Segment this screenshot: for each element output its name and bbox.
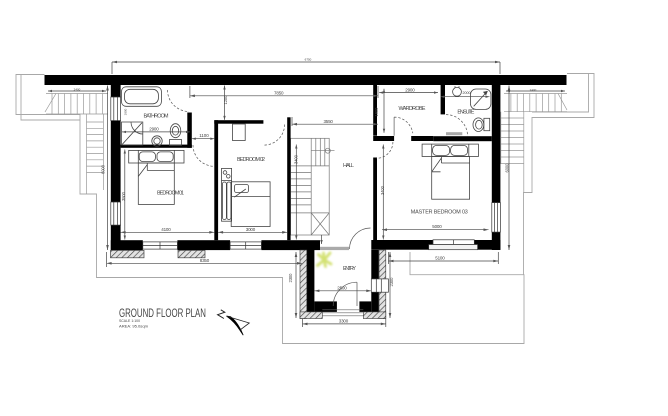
svg-text:2400: 2400 [74,87,81,91]
svg-text:2900: 2900 [149,127,159,132]
svg-text:1100: 1100 [199,133,209,138]
svg-text:EN-SUITE: EN-SUITE [457,110,474,116]
svg-text:2500: 2500 [337,285,347,290]
svg-text:2400: 2400 [530,88,537,92]
svg-text:5000: 5000 [432,224,442,229]
svg-text:1800: 1800 [124,108,128,115]
svg-text:1900: 1900 [374,107,379,117]
svg-text:6000: 6000 [505,163,510,173]
svg-text:2000: 2000 [463,91,471,95]
svg-text:WARDROBE: WARDROBE [399,106,426,112]
svg-text:8350: 8350 [200,258,210,263]
svg-text:SCALE 1:100: SCALE 1:100 [119,318,141,323]
svg-text:MASTER BEDROOM 03: MASTER BEDROOM 03 [411,210,468,216]
svg-text:3400: 3400 [294,154,299,164]
svg-text:3300: 3300 [339,318,349,323]
svg-text:AREA: 95.0sqm: AREA: 95.0sqm [119,324,149,329]
svg-text:3000: 3000 [246,227,256,232]
svg-text:6750: 6750 [305,58,312,62]
svg-text:5100: 5100 [435,256,445,261]
svg-text:3550: 3550 [323,119,333,124]
svg-text:BEDROOM 01: BEDROOM 01 [157,191,184,197]
svg-text:BATHROOM: BATHROOM [144,114,170,120]
svg-text:HALL: HALL [343,163,354,169]
svg-text:6000: 6000 [100,164,105,174]
svg-text:2300: 2300 [389,277,394,287]
svg-text:3400: 3400 [380,185,385,195]
svg-text:7850: 7850 [274,90,284,95]
svg-text:3500: 3500 [121,191,126,201]
svg-text:1200: 1200 [223,95,228,105]
svg-text:BEDROOM 02: BEDROOM 02 [237,157,265,163]
svg-text:ENTRY: ENTRY [343,266,356,272]
svg-text:2300: 2300 [288,273,293,283]
svg-text:2900: 2900 [405,87,415,92]
svg-text:4100: 4100 [161,227,171,232]
